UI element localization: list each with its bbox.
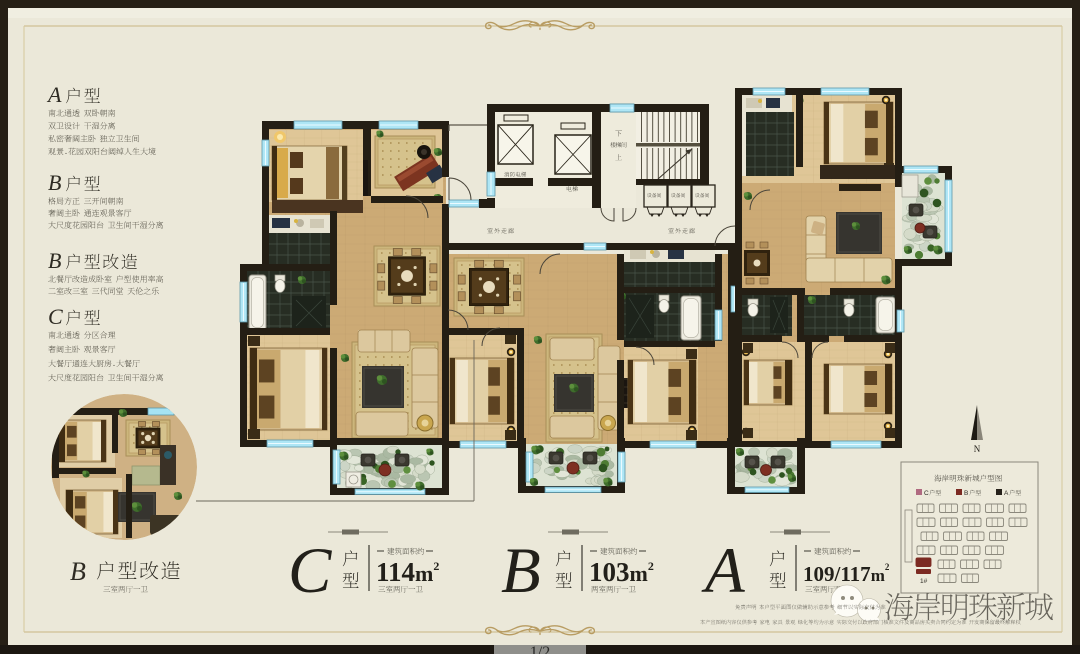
svg-text:C: C (288, 535, 332, 607)
svg-text:A: A (46, 82, 62, 107)
svg-text:C: C (48, 304, 63, 329)
svg-text:A: A (701, 535, 745, 607)
svg-text:N: N (974, 444, 981, 454)
svg-text:109/117m2: 109/117m2 (803, 562, 890, 586)
svg-text:B: B (48, 248, 61, 273)
svg-text:B: B (70, 557, 86, 586)
svg-text:B: B (964, 490, 968, 497)
svg-text:1/2: 1/2 (530, 644, 550, 654)
svg-text:C: C (924, 490, 929, 497)
svg-text:A: A (1004, 490, 1009, 497)
svg-text:B: B (48, 170, 61, 195)
svg-text:103m2: 103m2 (589, 557, 654, 587)
svg-text:114m2: 114m2 (376, 557, 439, 587)
svg-text:B: B (501, 535, 541, 607)
svg-text:1#: 1# (920, 578, 928, 585)
